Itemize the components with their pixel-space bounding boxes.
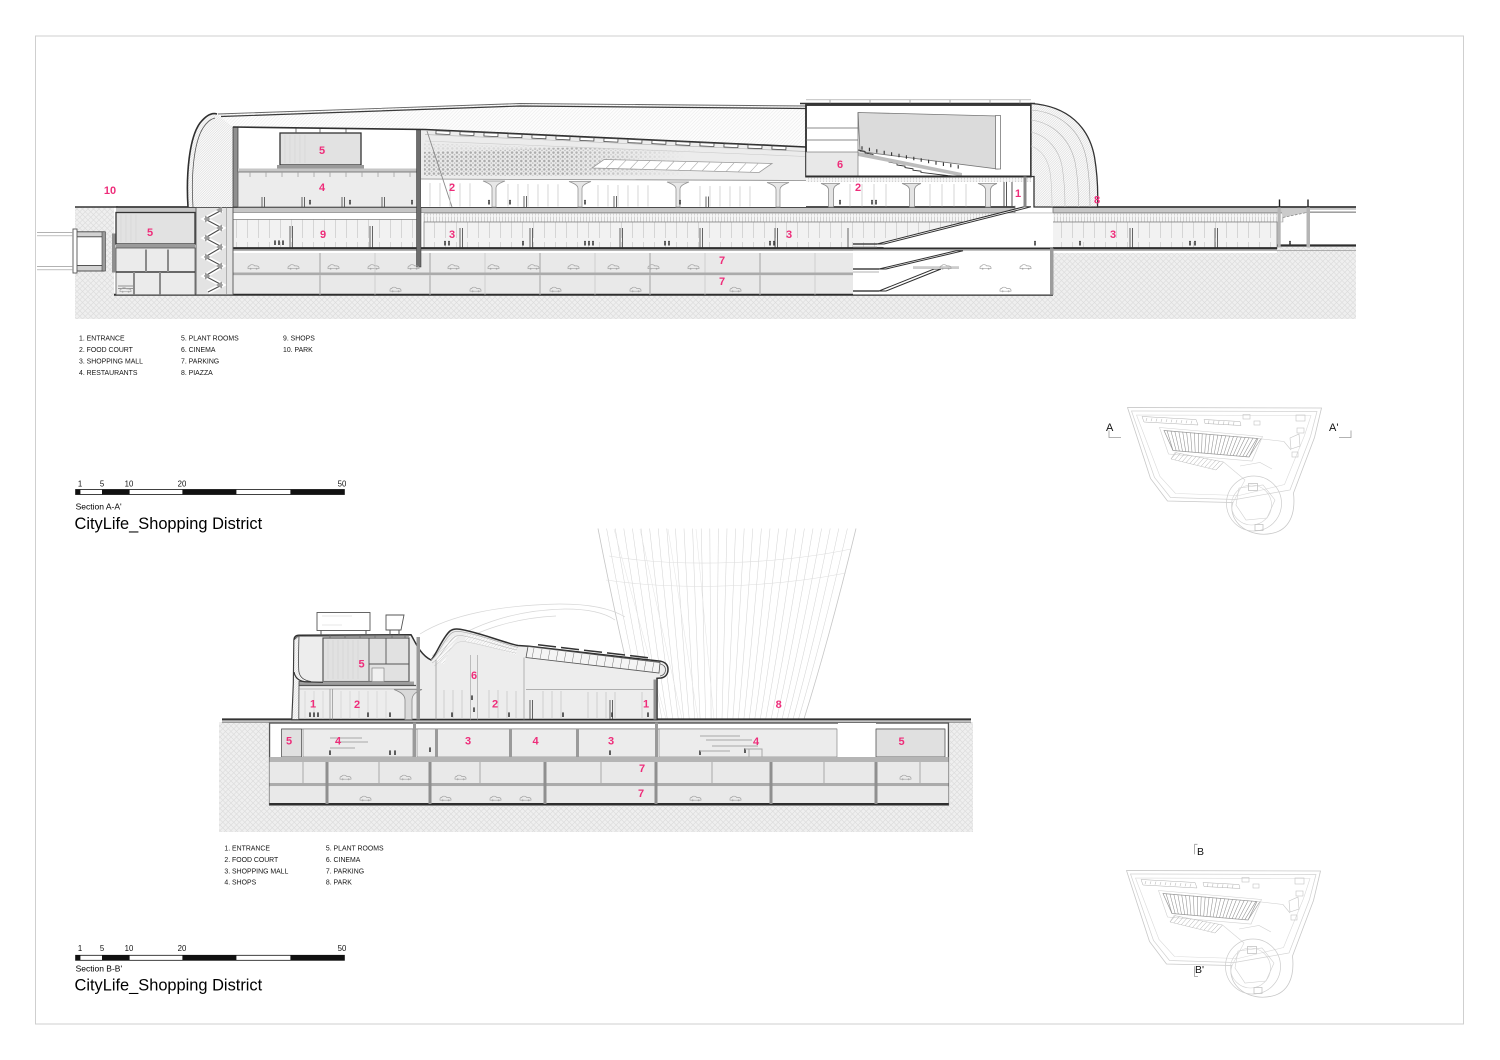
svg-text:9. SHOPS: 9. SHOPS <box>283 336 315 343</box>
svg-text:Section B-B': Section B-B' <box>76 963 123 973</box>
svg-text:5: 5 <box>899 736 905 748</box>
svg-text:5. PLANT ROOMS: 5. PLANT ROOMS <box>326 845 384 852</box>
svg-text:5. PLANT ROOMS: 5. PLANT ROOMS <box>181 336 239 343</box>
svg-text:3: 3 <box>449 229 455 241</box>
svg-text:3: 3 <box>465 736 471 748</box>
svg-text:5: 5 <box>359 659 365 671</box>
svg-text:10: 10 <box>104 185 116 197</box>
svg-text:Section A-A': Section A-A' <box>76 502 122 512</box>
svg-text:6. CINEMA: 6. CINEMA <box>326 857 361 864</box>
svg-text:7: 7 <box>719 255 725 267</box>
svg-text:1: 1 <box>1015 188 1021 200</box>
svg-text:8. PIAZZA: 8. PIAZZA <box>181 370 213 377</box>
svg-text:7. PARKING: 7. PARKING <box>181 359 219 366</box>
svg-text:5: 5 <box>319 145 325 157</box>
svg-text:4: 4 <box>319 182 326 194</box>
svg-text:5: 5 <box>100 480 105 489</box>
svg-text:CityLife_Shopping District: CityLife_Shopping District <box>75 977 263 995</box>
svg-text:8. PARK: 8. PARK <box>326 879 352 886</box>
svg-text:7: 7 <box>639 763 645 775</box>
svg-text:20: 20 <box>178 944 187 953</box>
svg-text:10: 10 <box>125 944 134 953</box>
svg-text:2: 2 <box>492 699 498 711</box>
svg-text:CityLife_Shopping District: CityLife_Shopping District <box>75 515 263 533</box>
svg-text:2: 2 <box>449 182 455 194</box>
svg-text:5: 5 <box>100 944 105 953</box>
svg-text:50: 50 <box>338 944 347 953</box>
svg-text:4: 4 <box>533 736 540 748</box>
svg-text:1. ENTRANCE: 1. ENTRANCE <box>79 336 125 343</box>
svg-text:4. RESTAURANTS: 4. RESTAURANTS <box>79 370 138 377</box>
svg-text:7: 7 <box>638 788 644 800</box>
svg-text:4. SHOPS: 4. SHOPS <box>224 879 256 886</box>
svg-text:7. PARKING: 7. PARKING <box>326 868 364 875</box>
svg-text:6: 6 <box>471 670 477 682</box>
svg-text:4: 4 <box>753 736 760 748</box>
svg-text:5: 5 <box>286 736 292 748</box>
svg-text:B: B <box>1197 846 1204 858</box>
svg-text:3: 3 <box>1110 229 1116 241</box>
svg-text:1: 1 <box>78 944 82 953</box>
svg-text:4: 4 <box>335 736 342 748</box>
svg-text:5: 5 <box>147 227 153 239</box>
svg-text:2: 2 <box>354 699 360 711</box>
svg-text:6. CINEMA: 6. CINEMA <box>181 347 216 354</box>
svg-text:A: A <box>1106 422 1114 434</box>
svg-text:2. FOOD COURT: 2. FOOD COURT <box>224 857 279 864</box>
svg-text:3. SHOPPING MALL: 3. SHOPPING MALL <box>224 868 288 875</box>
svg-text:3. SHOPPING MALL: 3. SHOPPING MALL <box>79 359 143 366</box>
svg-text:2: 2 <box>855 182 861 194</box>
svg-text:9: 9 <box>320 229 326 241</box>
svg-text:6: 6 <box>837 159 843 171</box>
svg-text:3: 3 <box>786 229 792 241</box>
svg-text:10. PARK: 10. PARK <box>283 347 313 354</box>
svg-text:1. ENTRANCE: 1. ENTRANCE <box>224 845 270 852</box>
svg-text:8: 8 <box>776 699 782 711</box>
svg-text:B': B' <box>1195 964 1204 976</box>
svg-text:7: 7 <box>719 276 725 288</box>
svg-text:8: 8 <box>1094 195 1100 207</box>
svg-text:3: 3 <box>608 736 614 748</box>
svg-text:50: 50 <box>338 480 347 489</box>
svg-text:2. FOOD COURT: 2. FOOD COURT <box>79 347 134 354</box>
svg-text:A': A' <box>1329 422 1338 434</box>
svg-text:20: 20 <box>178 480 187 489</box>
svg-text:1: 1 <box>78 480 82 489</box>
svg-text:1: 1 <box>643 698 649 710</box>
svg-text:10: 10 <box>125 480 134 489</box>
svg-text:1: 1 <box>310 698 316 710</box>
